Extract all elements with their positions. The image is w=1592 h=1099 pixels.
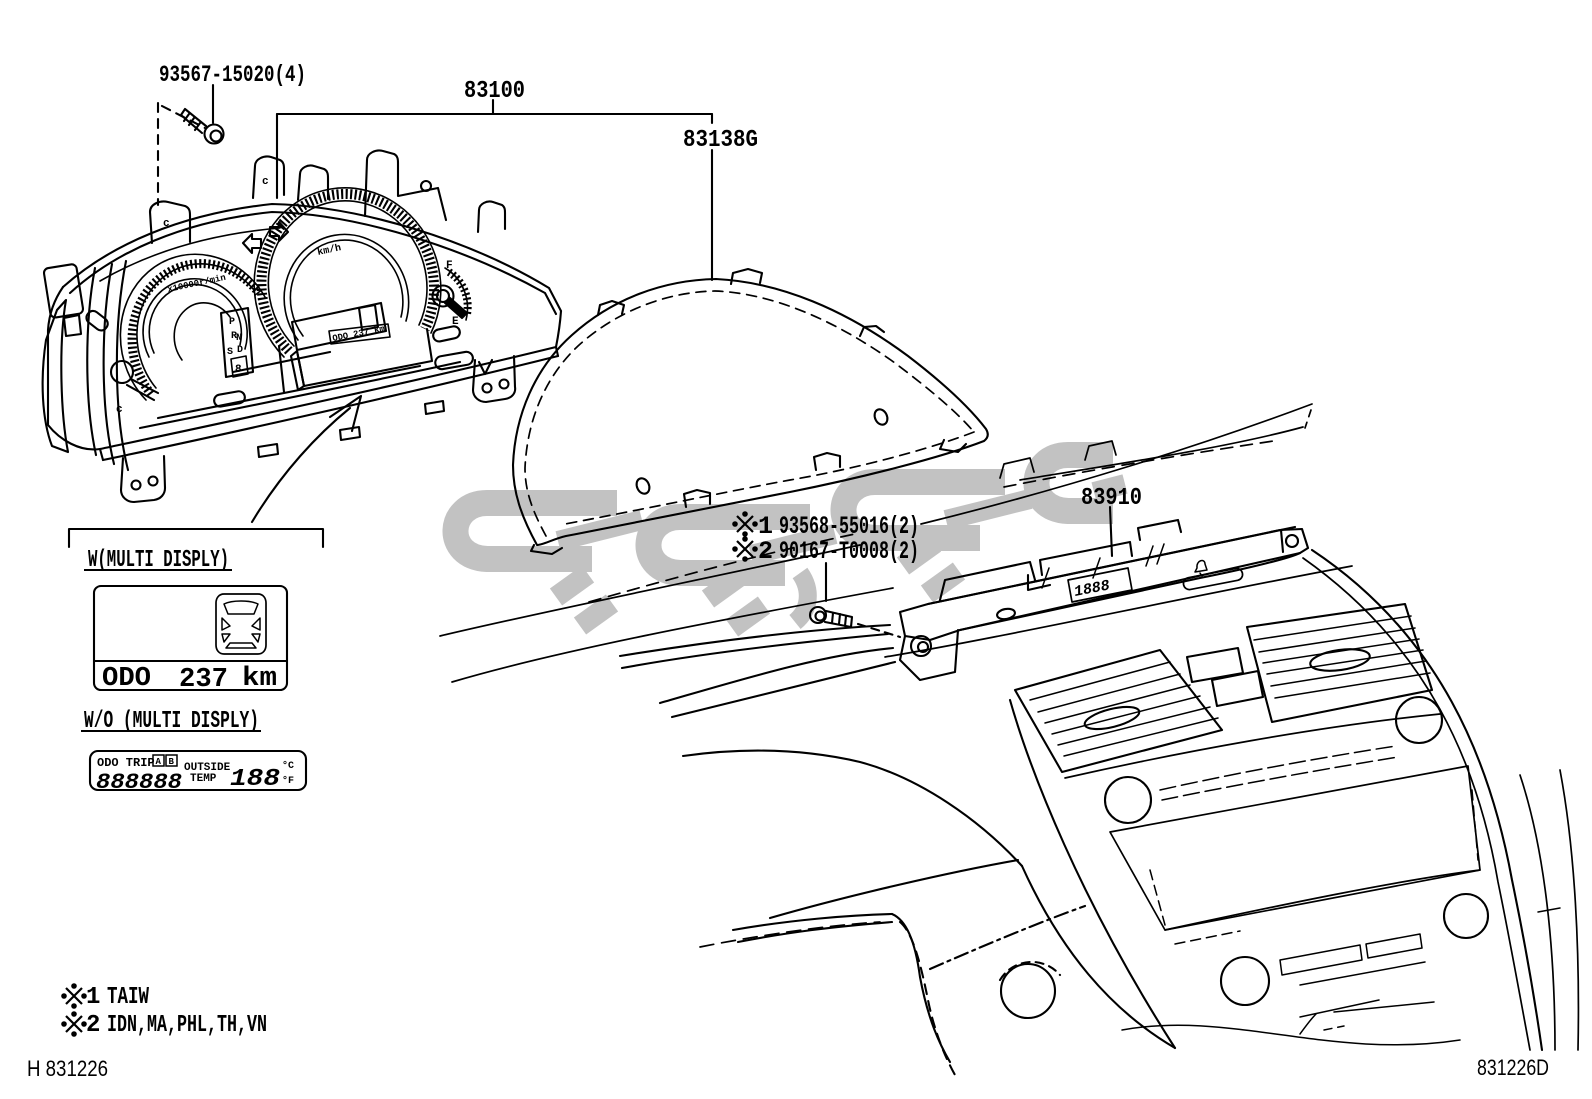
svg-text:c: c: [262, 176, 269, 188]
svg-text:D: D: [237, 345, 243, 356]
svg-text:83910: 83910: [1081, 485, 1142, 512]
svg-text:c: c: [116, 404, 123, 416]
svg-text:2: 2: [86, 1012, 100, 1039]
svg-text:8: 8: [235, 364, 242, 376]
svg-text:°F: °F: [282, 775, 294, 787]
svg-text:TAIW: TAIW: [107, 984, 149, 1011]
svg-text:ODO TRIP: ODO TRIP: [97, 756, 155, 770]
svg-text:IDN,MA,PHL,TH,VN: IDN,MA,PHL,TH,VN: [107, 1012, 267, 1039]
svg-text:831226D: 831226D: [1477, 1055, 1549, 1080]
svg-text:888888: 888888: [96, 770, 182, 795]
svg-text:P: P: [229, 317, 235, 328]
svg-text:1: 1: [86, 984, 100, 1011]
svg-text:A: A: [156, 757, 162, 767]
svg-text:83100: 83100: [464, 78, 525, 105]
svg-text:ODO: ODO: [102, 664, 151, 694]
svg-text:F: F: [446, 260, 453, 272]
svg-text:km: km: [242, 664, 277, 694]
svg-text:°C: °C: [282, 760, 294, 772]
svg-text:93567-15020(4): 93567-15020(4): [159, 62, 306, 88]
svg-text:B: B: [169, 757, 175, 767]
svg-text:90167-T0008(2): 90167-T0008(2): [779, 537, 919, 566]
svg-text:E: E: [452, 316, 459, 328]
svg-text:H 831226: H 831226: [27, 1056, 108, 1081]
svg-text:km/h: km/h: [316, 242, 342, 259]
svg-text:S: S: [227, 347, 233, 358]
svg-text:c: c: [163, 218, 170, 230]
svg-text:83138G: 83138G: [683, 127, 758, 154]
svg-text:2: 2: [758, 537, 773, 566]
svg-text:N: N: [236, 333, 242, 344]
svg-text:TEMP: TEMP: [190, 773, 217, 785]
svg-text:188: 188: [230, 766, 280, 793]
svg-text:237: 237: [179, 665, 228, 695]
